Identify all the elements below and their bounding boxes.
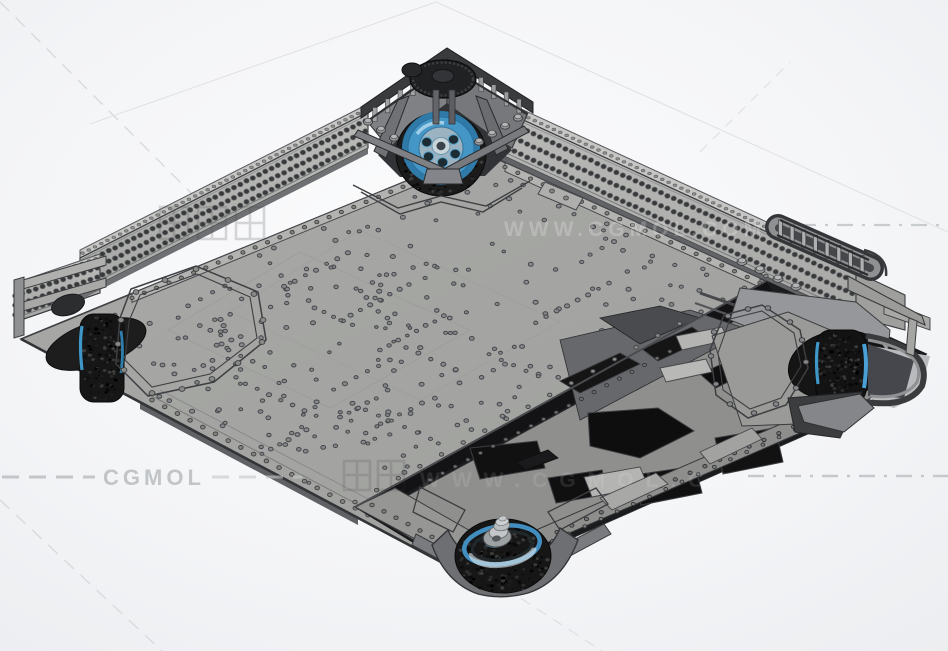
svg-text:WWW.CGMOL.COM: WWW.CGMOL.COM bbox=[504, 218, 766, 241]
svg-text:CGMOL: CGMOL bbox=[103, 465, 205, 490]
svg-text:WWW.CGMOL.COM: WWW.CGMOL.COM bbox=[420, 469, 773, 492]
